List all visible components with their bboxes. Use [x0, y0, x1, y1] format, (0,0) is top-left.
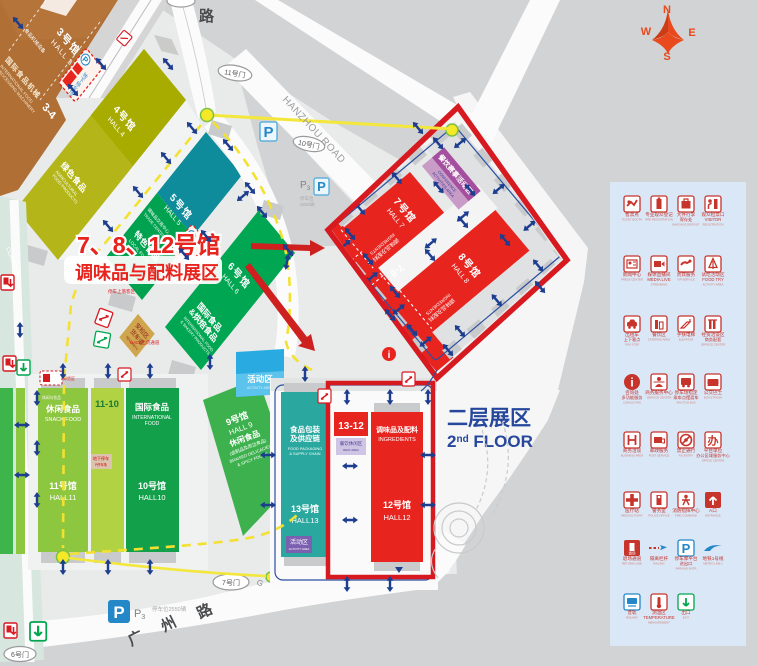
svg-text:调味品与配料展区: 调味品与配料展区: [75, 262, 219, 283]
svg-text:ELEVATOR: ELEVATOR: [679, 338, 693, 342]
svg-text:食品包装: 食品包装: [290, 424, 320, 434]
svg-text:W: W: [641, 26, 652, 38]
svg-text:SHUTTLE BUS: SHUTTLE BUS: [676, 401, 695, 405]
svg-text:CONSULTING: CONSULTING: [623, 401, 641, 405]
svg-text:REGISTRATION: REGISTRATION: [703, 223, 724, 227]
svg-text:P: P: [263, 124, 273, 141]
svg-text:HALL10: HALL10: [138, 493, 165, 502]
svg-text:7、8、12号馆: 7、8、12号馆: [77, 232, 220, 258]
svg-text:& SUPPLY CHAIN: & SUPPLY CHAIN: [289, 452, 320, 456]
svg-text:S: S: [663, 51, 670, 63]
svg-text:6号门: 6号门: [11, 650, 29, 659]
svg-text:ACTIVITY AREA: ACTIVITY AREA: [703, 283, 724, 287]
svg-text:P: P: [317, 179, 326, 194]
svg-text:二层展区: 二层展区: [447, 407, 531, 430]
svg-text:停车位2550辆: 停车位2550辆: [152, 605, 187, 613]
svg-text:SERVICE CENTER: SERVICE CENTER: [701, 343, 726, 347]
svg-text:13号馆: 13号馆: [291, 503, 319, 514]
svg-text:ACTIVITY AREA: ACTIVITY AREA: [289, 547, 310, 551]
svg-text:STREAMING: STREAMING: [651, 283, 668, 287]
svg-text:HALL出货通道: HALL出货通道: [130, 339, 160, 346]
svg-text:P停车场: P停车场: [95, 462, 107, 467]
svg-text:NO ENTRY: NO ENTRY: [679, 454, 694, 458]
svg-text:REST AREA: REST AREA: [343, 448, 359, 452]
svg-text:INGREDIENTS: INGREDIENTS: [378, 437, 416, 443]
svg-text:SERVICE CENTER: SERVICE CENTER: [647, 396, 672, 400]
svg-text:P: P: [113, 603, 124, 622]
svg-text:TAXI STOP: TAXI STOP: [625, 343, 639, 347]
svg-text:休闲与饮品: 休闲与饮品: [42, 395, 61, 400]
svg-text:VISITOR: VISITOR: [705, 217, 722, 222]
svg-text:i: i: [630, 376, 633, 390]
svg-text:RAILWAY: RAILWAY: [626, 616, 638, 620]
svg-text:路: 路: [199, 7, 215, 25]
svg-text:地下停车: 地下停车: [93, 455, 109, 461]
svg-text:BUSINESS AREA: BUSINESS AREA: [621, 454, 644, 458]
svg-text:停车上落客区: 停车上落客区: [108, 288, 135, 295]
svg-text:11-10: 11-10: [95, 399, 119, 410]
svg-text:HALL12: HALL12: [383, 513, 410, 522]
svg-text:TEMPERATURE: TEMPERATURE: [643, 615, 675, 620]
svg-text:10号馆: 10号馆: [138, 480, 166, 491]
svg-text:VIP SERVICE: VIP SERVICE: [677, 278, 695, 282]
svg-text:及供应链: 及供应链: [290, 433, 320, 443]
svg-text:FIRE COMMAND: FIRE COMMAND: [675, 514, 697, 518]
svg-text:CATERING AREA: CATERING AREA: [648, 338, 671, 342]
svg-text:BAGGAGE DEPOSIT: BAGGAGE DEPOSIT: [672, 223, 699, 227]
svg-text:POST SERVICE: POST SERVICE: [649, 454, 670, 458]
svg-text:P: P: [682, 541, 691, 556]
svg-text:BUS STATION: BUS STATION: [704, 396, 722, 400]
svg-text:7号门: 7号门: [222, 578, 240, 587]
svg-text:MEDIA LIVE: MEDIA LIVE: [647, 277, 670, 282]
svg-text:RAILING: RAILING: [653, 562, 664, 566]
svg-text:停车位: 停车位: [300, 195, 314, 202]
svg-text:METRO LINE 1: METRO LINE 1: [703, 562, 723, 566]
svg-text:ACTIVITY AREA: ACTIVITY AREA: [247, 386, 274, 390]
svg-text:2830辆: 2830辆: [300, 201, 315, 208]
svg-text:活动区: 活动区: [247, 374, 273, 384]
svg-text:FOOD PACKAGING: FOOD PACKAGING: [288, 447, 322, 451]
svg-text:13-12: 13-12: [338, 421, 364, 432]
svg-text:POLICE OFFICE: POLICE OFFICE: [648, 514, 669, 518]
svg-text:EXIT: EXIT: [683, 616, 690, 620]
svg-text:N: N: [663, 4, 671, 16]
svg-text:餐饮休闲区: 餐饮休闲区: [340, 440, 363, 447]
svg-text:FOOD TRY: FOOD TRY: [702, 277, 724, 282]
svg-text:TICKET BOOTH: TICKET BOOTH: [622, 218, 643, 222]
svg-text:E: E: [688, 27, 695, 39]
svg-text:OFFICE CENTER: OFFICE CENTER: [702, 459, 725, 463]
svg-text:PARKING ENTR: PARKING ENTR: [676, 567, 697, 571]
svg-text:国际食品: 国际食品: [135, 402, 170, 412]
svg-text:12号馆: 12号馆: [383, 499, 411, 510]
svg-text:RETURN LANE: RETURN LANE: [622, 562, 642, 566]
svg-text:PRE-REGISTRATION: PRE-REGISTRATION: [645, 218, 672, 222]
svg-text:FOOD: FOOD: [145, 421, 160, 427]
svg-text:退场: 退场: [629, 551, 637, 556]
svg-text:i: i: [388, 350, 391, 361]
svg-text:活动区: 活动区: [290, 538, 308, 546]
svg-text:PRESS CENTER: PRESS CENTER: [621, 278, 643, 282]
svg-text:调味品及配料: 调味品及配料: [376, 425, 418, 434]
svg-text:MEASUREMENT: MEASUREMENT: [648, 621, 670, 625]
svg-text:ENTRANCE: ENTRANCE: [705, 514, 721, 518]
svg-text:MEDICAL POINT: MEDICAL POINT: [621, 514, 643, 518]
svg-text:办: 办: [708, 434, 719, 448]
